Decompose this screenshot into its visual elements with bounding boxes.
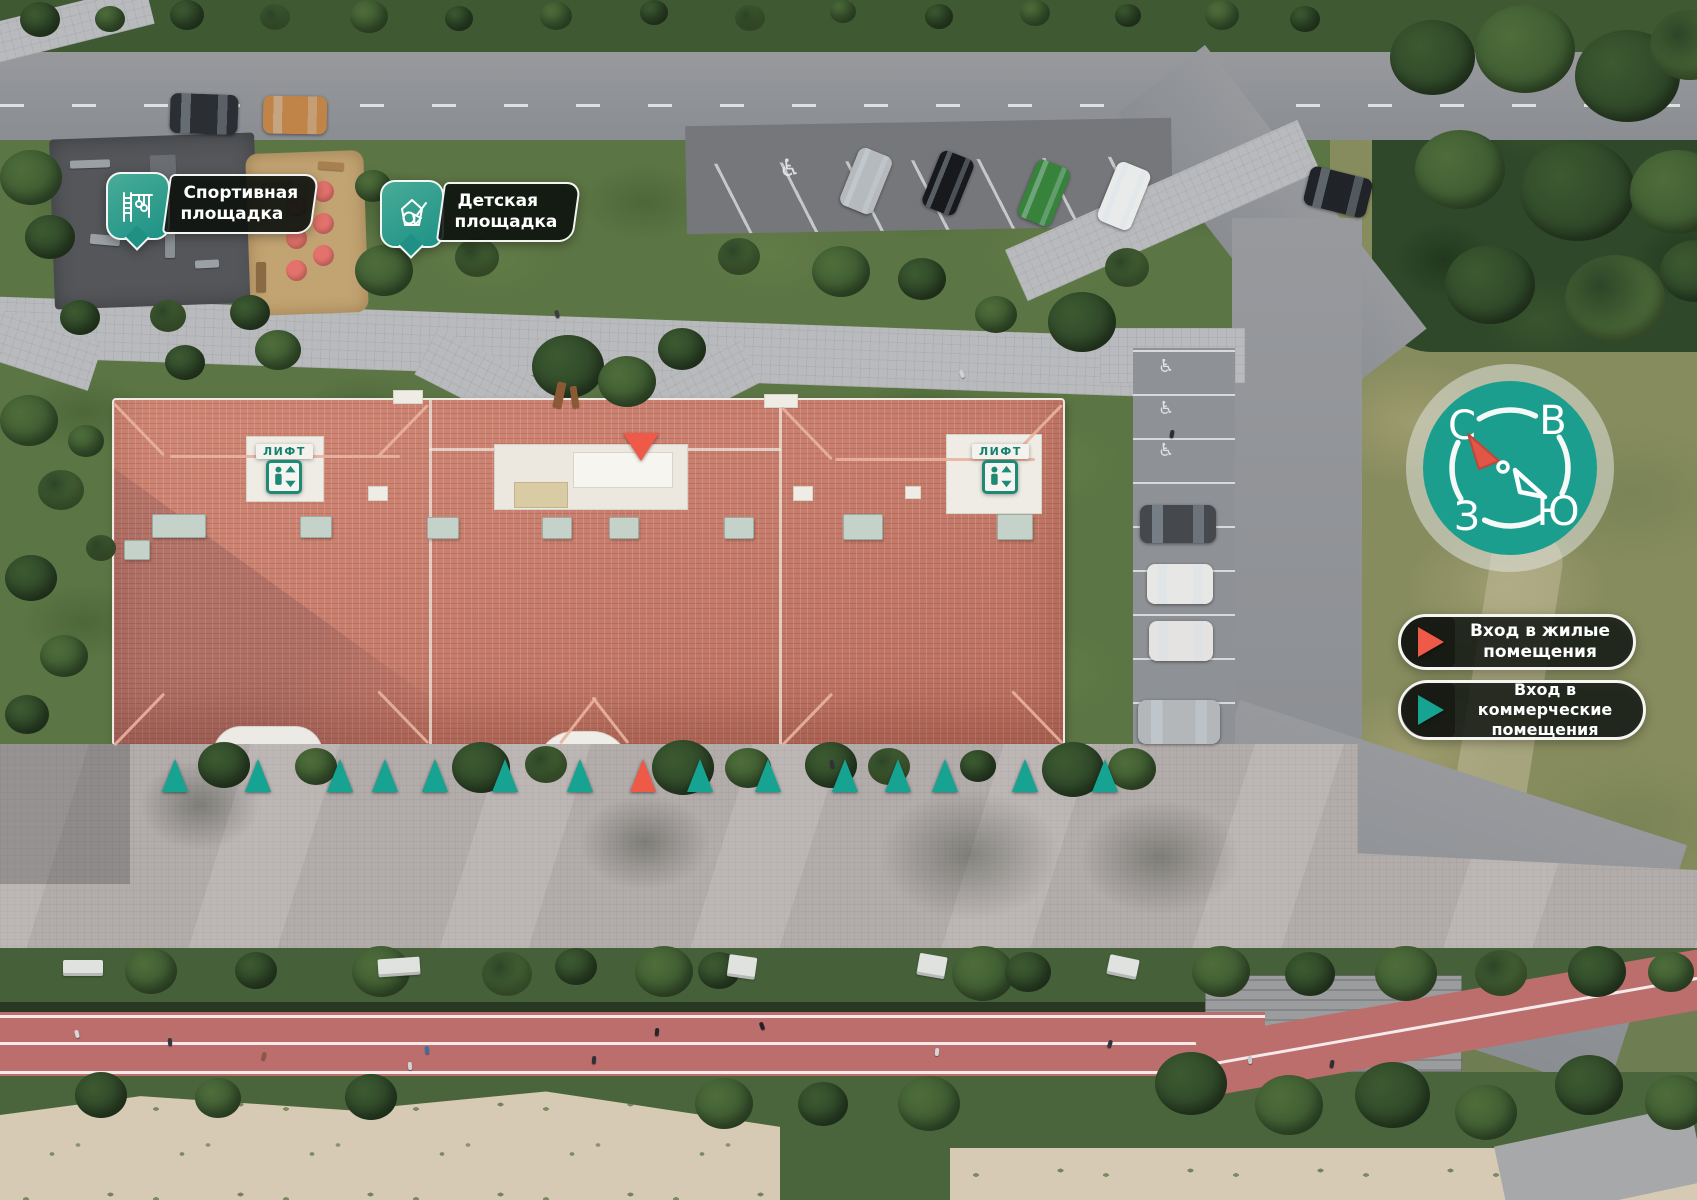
lift-label: ЛИФТ bbox=[972, 444, 1029, 459]
legend-text-line2: помещения bbox=[1459, 642, 1621, 663]
sports-equipment-icon bbox=[106, 172, 170, 240]
commercial-entrance-marker[interactable] bbox=[492, 759, 518, 792]
elevator-icon bbox=[982, 460, 1018, 494]
sand-bucket-icon bbox=[380, 180, 444, 248]
commercial-entrance-marker[interactable] bbox=[1092, 759, 1118, 792]
commercial-entrance-marker[interactable] bbox=[245, 759, 271, 792]
commercial-entrance-marker[interactable] bbox=[567, 759, 593, 792]
badge-text-line1: Спортивная bbox=[183, 183, 298, 204]
badge-text-line1: Детская bbox=[457, 191, 560, 212]
legend-residential: Вход в жилые помещения bbox=[1398, 614, 1636, 670]
legend-commercial: Вход в коммерческие помещения bbox=[1398, 680, 1646, 740]
compass-east-label: В bbox=[1539, 398, 1566, 444]
residential-entrance-marker[interactable] bbox=[623, 433, 659, 461]
legend-text-line1: Вход в жилые bbox=[1459, 621, 1621, 642]
compass-west-label: З bbox=[1454, 494, 1480, 540]
commercial-entrance-icon bbox=[1418, 695, 1444, 725]
commercial-entrance-marker[interactable] bbox=[372, 759, 398, 792]
legend-text-line1: Вход в коммерческие bbox=[1459, 680, 1631, 720]
lift-sign: ЛИФТ bbox=[256, 444, 313, 494]
commercial-entrance-marker[interactable] bbox=[162, 759, 188, 792]
legend-marker-zone bbox=[1401, 683, 1455, 737]
residential-entrance-marker[interactable] bbox=[630, 759, 656, 792]
commercial-entrance-marker[interactable] bbox=[885, 759, 911, 792]
badge-text-line2: площадка bbox=[181, 204, 296, 225]
commercial-entrance-marker[interactable] bbox=[932, 759, 958, 792]
lift-sign: ЛИФТ bbox=[972, 444, 1029, 494]
legend-marker-zone bbox=[1401, 617, 1455, 667]
lift-label: ЛИФТ bbox=[256, 444, 313, 459]
site-plan-render: ♿ ♿ ♿ ♿ bbox=[0, 0, 1697, 1200]
badge-sports-ground[interactable]: Спортивная площадка bbox=[106, 172, 315, 240]
badge-kids-playground[interactable]: Детская площадка bbox=[380, 180, 577, 248]
badge-label: Спортивная площадка bbox=[162, 174, 319, 234]
legend-text-line2: помещения bbox=[1459, 720, 1631, 740]
badge-label: Детская площадка bbox=[436, 182, 581, 242]
compass: С В З Ю bbox=[1404, 362, 1616, 574]
commercial-entrance-marker[interactable] bbox=[687, 759, 713, 792]
residential-entrance-icon bbox=[1418, 627, 1444, 657]
commercial-entrance-marker[interactable] bbox=[1012, 759, 1038, 792]
commercial-entrance-marker[interactable] bbox=[755, 759, 781, 792]
commercial-entrance-marker[interactable] bbox=[832, 759, 858, 792]
commercial-entrance-marker[interactable] bbox=[422, 759, 448, 792]
commercial-entrance-marker[interactable] bbox=[327, 759, 353, 792]
badge-text-line2: площадка bbox=[455, 212, 558, 233]
elevator-icon bbox=[266, 460, 302, 494]
